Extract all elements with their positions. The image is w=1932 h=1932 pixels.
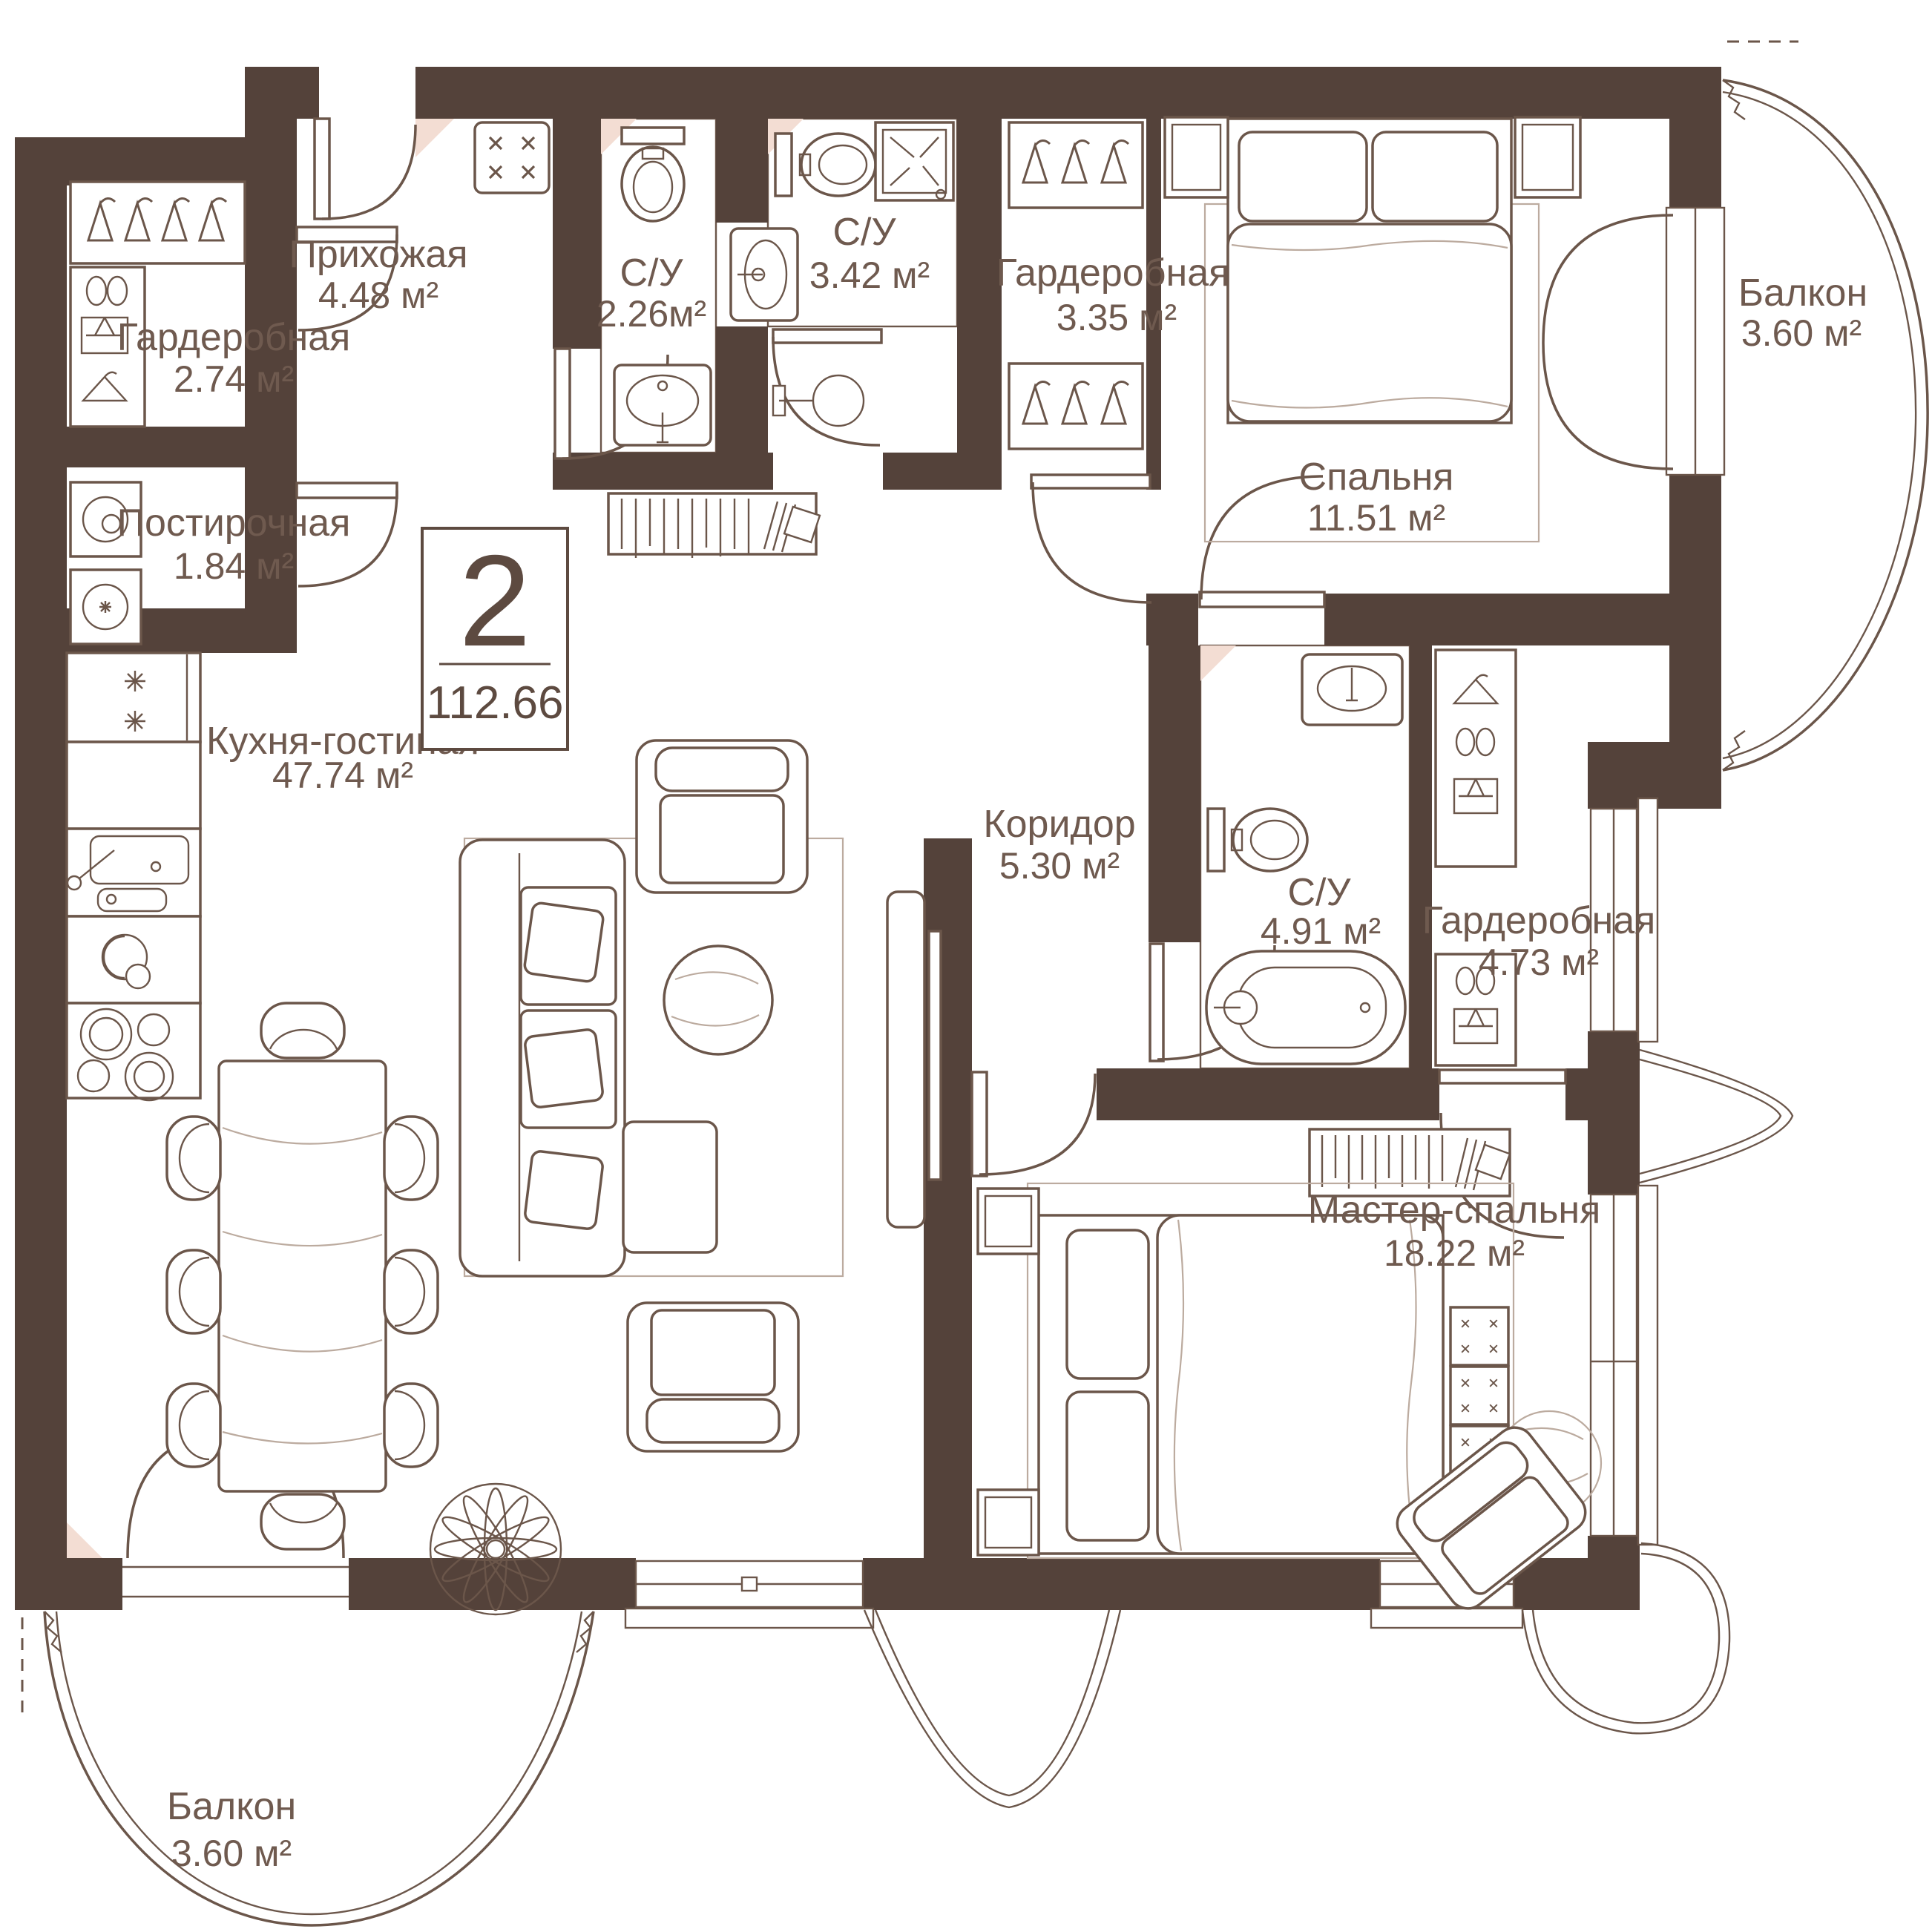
window-bottom-living xyxy=(625,1561,873,1628)
wardrobe1-hanger-rack xyxy=(70,182,245,263)
wardrobe2-area: 3.35 м² xyxy=(1057,297,1177,338)
wardrobe2-rack-bottom xyxy=(1009,364,1143,449)
master-bedroom-label: Мастер-спальня xyxy=(1308,1189,1601,1232)
balcony-door-bedroom xyxy=(1543,208,1724,475)
bath2-area: 3.42 м² xyxy=(809,254,930,296)
fridge-icon xyxy=(67,653,200,742)
toilet-icon-bath1 xyxy=(622,128,684,221)
master-bed-icon xyxy=(1039,1215,1443,1554)
bath3-label: С/У xyxy=(1287,871,1351,914)
bedroom-label: Спальня xyxy=(1299,456,1454,499)
sink-icon-bath1 xyxy=(614,365,711,445)
wardrobe2-rack-top xyxy=(1009,122,1143,208)
floor-plan: Прихожая 4.48 м² Гардеробная 2.74 м² Пос… xyxy=(0,0,1932,1932)
balcony-right-area: 3.60 м² xyxy=(1741,312,1862,354)
sink-icon-bath3 xyxy=(1302,654,1402,725)
armchair-top-icon xyxy=(637,740,807,893)
kitchen-living-area: 47.74 м² xyxy=(272,755,413,796)
badge-rooms-count: 2 xyxy=(459,529,530,674)
hall-shoe-cabinet xyxy=(608,493,820,558)
kitchen-sink-icon xyxy=(67,829,200,916)
sink-icon-bath2 xyxy=(731,229,798,321)
corridor-area: 5.30 м² xyxy=(999,845,1120,887)
master-dresser xyxy=(1310,1129,1510,1196)
wardrobe2-door xyxy=(1031,475,1151,602)
hallway-area: 4.48 м² xyxy=(318,275,438,316)
bed-icon xyxy=(1228,119,1511,423)
kitchen-cabinet xyxy=(67,742,200,829)
master-side-table-top xyxy=(978,1189,1039,1254)
toilet-icon-bath3 xyxy=(1208,809,1307,871)
bathtub-icon xyxy=(1206,951,1405,1064)
wardrobe3-label: Гардеробная xyxy=(1422,899,1656,942)
wardrobe3-shelves xyxy=(1436,650,1516,1065)
type-badge: 2 112.66 xyxy=(422,528,568,749)
electrical-panel-icon xyxy=(475,122,549,193)
balcony-bottom-label: Балкон xyxy=(167,1785,296,1828)
nightstand-left-icon xyxy=(1165,117,1228,197)
dryer-icon xyxy=(70,570,141,644)
wardrobe3-area: 4.73 м² xyxy=(1479,942,1599,983)
bay-outline-bottom xyxy=(864,1610,1120,1807)
master-bedroom-area: 18.22 м² xyxy=(1384,1232,1525,1274)
bath3-area: 4.91 м² xyxy=(1261,910,1381,952)
sofa-icon xyxy=(460,840,717,1276)
shower-icon xyxy=(875,122,953,200)
bath1-area: 2.26м² xyxy=(597,293,706,335)
armchair-bottom-icon xyxy=(628,1303,798,1451)
balcony-bottom-area: 3.60 м² xyxy=(171,1833,292,1874)
balcony-bottom-outline xyxy=(45,1611,594,1925)
laundry-area: 1.84 м² xyxy=(174,545,294,587)
wardrobe2-label: Гардеробная xyxy=(996,252,1230,295)
tv-stand-icon xyxy=(887,892,941,1227)
hallway-label: Прихожая xyxy=(289,233,468,276)
master-door xyxy=(972,1072,1095,1176)
badge-total-area: 112.66 xyxy=(426,677,563,729)
balcony-right-label: Балкон xyxy=(1738,272,1867,315)
wardrobe1-area: 2.74 м² xyxy=(174,358,294,400)
toilet-icon-bath2 xyxy=(775,134,875,196)
bedroom-area: 11.51 м² xyxy=(1307,497,1445,539)
laundry-label: Постирочная xyxy=(117,502,351,545)
entrance-door xyxy=(315,119,415,219)
bath1-label: С/У xyxy=(620,252,683,295)
hob-icon xyxy=(67,1003,200,1100)
washer-tap-icon xyxy=(773,375,864,426)
window-right-master xyxy=(1591,1186,1657,1545)
wardrobe1-label: Гардеробная xyxy=(117,316,351,359)
balcony-right-outline xyxy=(1723,80,1928,770)
coffee-machine-icon xyxy=(67,916,200,1003)
coffee-table-icon xyxy=(664,946,772,1054)
corridor-label: Коридор xyxy=(983,803,1135,846)
dining-table xyxy=(219,1061,386,1491)
master-side-table-bottom xyxy=(978,1490,1039,1555)
bath2-label: С/У xyxy=(832,211,896,254)
nightstand-right-icon xyxy=(1515,117,1580,197)
